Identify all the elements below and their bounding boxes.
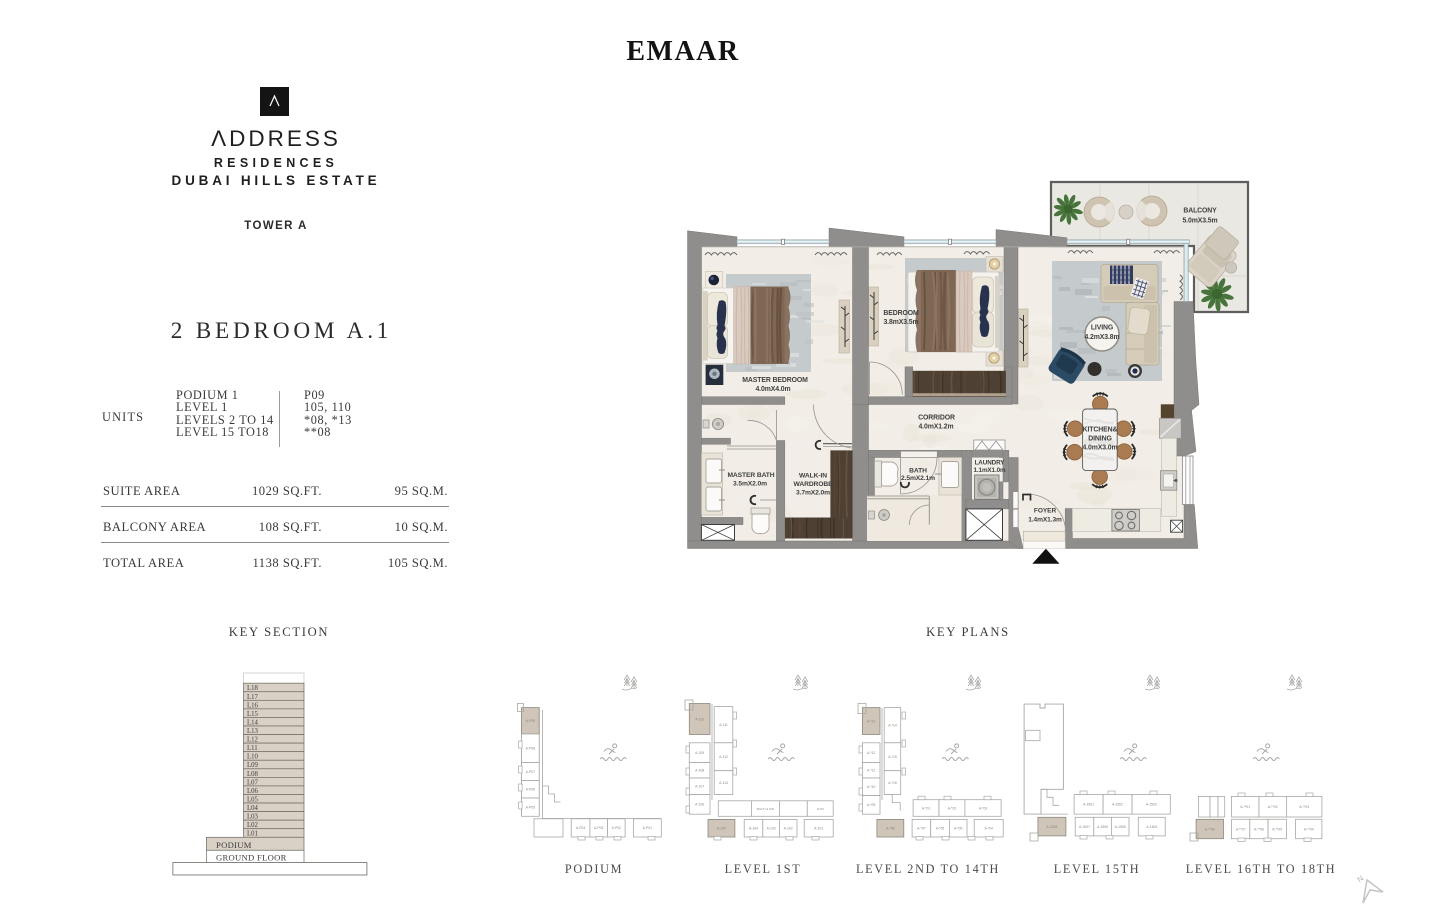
svg-text:L04: L04: [247, 805, 259, 812]
svg-text:BATH: BATH: [909, 468, 927, 475]
svg-text:LEVEL 2ND TO 14TH: LEVEL 2ND TO 14TH: [856, 862, 1000, 876]
svg-text:A-**05: A-**05: [1272, 827, 1282, 831]
svg-text:A-*01: A-*01: [922, 806, 931, 810]
svg-text:3.8mX3.5m: 3.8mX3.5m: [883, 319, 918, 326]
svg-text:A-1501: A-1501: [1083, 803, 1094, 807]
svg-text:A-1504: A-1504: [1146, 825, 1157, 829]
svg-text:A-*07: A-*07: [917, 827, 926, 831]
svg-text:L14: L14: [247, 719, 259, 726]
svg-text:4.0mX4.0m: 4.0mX4.0m: [755, 386, 790, 393]
svg-text:A-P01: A-P01: [643, 826, 653, 830]
svg-text:L10: L10: [247, 754, 259, 761]
svg-text:A-*10: A-*10: [867, 785, 876, 789]
svg-text:L16: L16: [247, 702, 259, 709]
svg-text:A-P04: A-P04: [576, 826, 586, 830]
svg-text:4.0mX1.2m: 4.0mX1.2m: [918, 424, 953, 431]
svg-text:A-1507: A-1507: [1079, 825, 1090, 829]
svg-text:L01: L01: [247, 831, 258, 838]
svg-text:5.0mX3.5m: 5.0mX3.5m: [1182, 218, 1217, 225]
svg-text:PODIUM: PODIUM: [565, 862, 623, 876]
svg-text:L15: L15: [247, 711, 259, 718]
svg-text:A-**02: A-**02: [1268, 805, 1278, 809]
svg-text:A-104: A-104: [749, 827, 758, 831]
svg-text:A-P06: A-P06: [526, 788, 536, 792]
svg-text:A-*02: A-*02: [948, 806, 957, 810]
svg-text:MASTER BEDROOM: MASTER BEDROOM: [742, 377, 808, 384]
svg-text:A-**01: A-**01: [1240, 805, 1250, 809]
svg-text:A-107: A-107: [695, 785, 704, 789]
svg-text:A-116: A-116: [695, 717, 704, 721]
svg-text:A-**06: A-**06: [1254, 827, 1264, 831]
svg-text:A-103: A-103: [767, 827, 776, 831]
svg-text:GROUND FLOOR: GROUND FLOOR: [216, 852, 287, 862]
svg-text:A-P07: A-P07: [526, 770, 536, 774]
svg-text:L06: L06: [247, 788, 259, 795]
svg-text:A-*15: A-*15: [888, 755, 897, 759]
svg-text:A-101: A-101: [814, 827, 823, 831]
svg-text:LIVING: LIVING: [1091, 325, 1113, 332]
svg-text:A-P03: A-P03: [594, 826, 604, 830]
svg-text:A-*04: A-*04: [984, 827, 993, 831]
svg-text:A-*16: A-*16: [888, 781, 897, 785]
svg-text:A-*03: A-*03: [979, 806, 988, 810]
svg-text:A-P08: A-P08: [526, 747, 536, 751]
svg-text:L11: L11: [247, 745, 258, 752]
svg-text:A-*11: A-*11: [867, 769, 875, 773]
svg-text:BALCONY: BALCONY: [1183, 208, 1217, 215]
svg-text:1.1mX1.0m: 1.1mX1.0m: [973, 467, 1006, 474]
svg-text:A-105: A-105: [717, 827, 726, 831]
svg-text:L08: L08: [247, 771, 259, 778]
svg-text:3.7mX2.0m: 3.7mX2.0m: [796, 490, 830, 497]
svg-text:A-P05: A-P05: [526, 805, 536, 809]
svg-text:A-1505: A-1505: [1115, 825, 1126, 829]
svg-text:4.2mX3.8m: 4.2mX3.8m: [1084, 334, 1119, 341]
svg-text:A-1503: A-1503: [1146, 803, 1157, 807]
svg-text:L12: L12: [247, 737, 259, 744]
svg-text:WALK-IN: WALK-IN: [799, 473, 827, 480]
svg-text:A-**08: A-**08: [1205, 827, 1215, 831]
svg-text:A-102: A-102: [784, 827, 793, 831]
svg-text:PODIUM: PODIUM: [216, 840, 252, 850]
svg-text:A-*09: A-*09: [867, 803, 876, 807]
svg-text:2.5mX2.1m: 2.5mX2.1m: [901, 475, 935, 482]
svg-text:A-**04: A-**04: [1304, 827, 1314, 831]
svg-text:A-108: A-108: [695, 769, 704, 773]
svg-text:MULTI & KID: MULTI & KID: [757, 807, 775, 811]
svg-text:N: N: [1355, 874, 1365, 885]
svg-text:WARDROBE: WARDROBE: [794, 481, 834, 488]
svg-text:MASTER BATH: MASTER BATH: [727, 472, 774, 479]
svg-text:DINING: DINING: [1088, 436, 1112, 443]
svg-text:A-*08: A-*08: [886, 827, 895, 831]
svg-text:A-*14: A-*14: [888, 724, 897, 728]
svg-text:L17: L17: [247, 694, 259, 701]
svg-text:LAUNDRY: LAUNDRY: [975, 460, 1006, 467]
svg-text:FOYER: FOYER: [1034, 508, 1057, 515]
svg-text:A-111: A-111: [719, 723, 728, 727]
svg-text:L03: L03: [247, 814, 259, 821]
svg-text:LEVEL 16TH TO 18TH: LEVEL 16TH TO 18TH: [1186, 862, 1337, 876]
svg-text:L13: L13: [247, 728, 259, 735]
svg-text:4.0mX3.0m: 4.0mX3.0m: [1082, 445, 1117, 452]
svg-text:A-1508: A-1508: [1046, 825, 1057, 829]
svg-text:3.5mX2.0m: 3.5mX2.0m: [733, 481, 767, 488]
svg-text:A-113: A-113: [719, 781, 728, 785]
svg-text:A-**07: A-**07: [1236, 827, 1246, 831]
svg-text:CORRIDOR: CORRIDOR: [918, 415, 955, 422]
svg-text:A-P02: A-P02: [612, 826, 622, 830]
svg-text:A-112: A-112: [719, 755, 728, 759]
svg-text:GYM: GYM: [817, 807, 824, 811]
svg-text:LEVEL 15TH: LEVEL 15TH: [1054, 862, 1141, 876]
svg-text:A-*05: A-*05: [954, 827, 963, 831]
svg-text:A-1502: A-1502: [1112, 803, 1123, 807]
svg-text:BEDROOM: BEDROOM: [883, 310, 919, 317]
svg-text:A-P09: A-P09: [526, 719, 536, 723]
svg-text:A-*06: A-*06: [936, 827, 945, 831]
svg-text:A-**03: A-**03: [1299, 805, 1309, 809]
svg-text:L05: L05: [247, 796, 259, 803]
svg-text:L02: L02: [247, 822, 259, 829]
svg-text:LEVEL 1ST: LEVEL 1ST: [725, 862, 802, 876]
svg-text:A-*12: A-*12: [867, 751, 876, 755]
svg-text:KITCHEN&: KITCHEN&: [1083, 427, 1118, 434]
svg-text:L07: L07: [247, 779, 259, 786]
svg-text:A-*13: A-*13: [867, 719, 876, 723]
svg-text:L09: L09: [247, 762, 259, 769]
svg-text:L18: L18: [247, 685, 259, 692]
svg-text:A-1506: A-1506: [1097, 825, 1108, 829]
svg-text:1.4mX1.3m: 1.4mX1.3m: [1028, 517, 1062, 524]
svg-text:A-109: A-109: [695, 751, 704, 755]
svg-text:A-106: A-106: [695, 803, 704, 807]
